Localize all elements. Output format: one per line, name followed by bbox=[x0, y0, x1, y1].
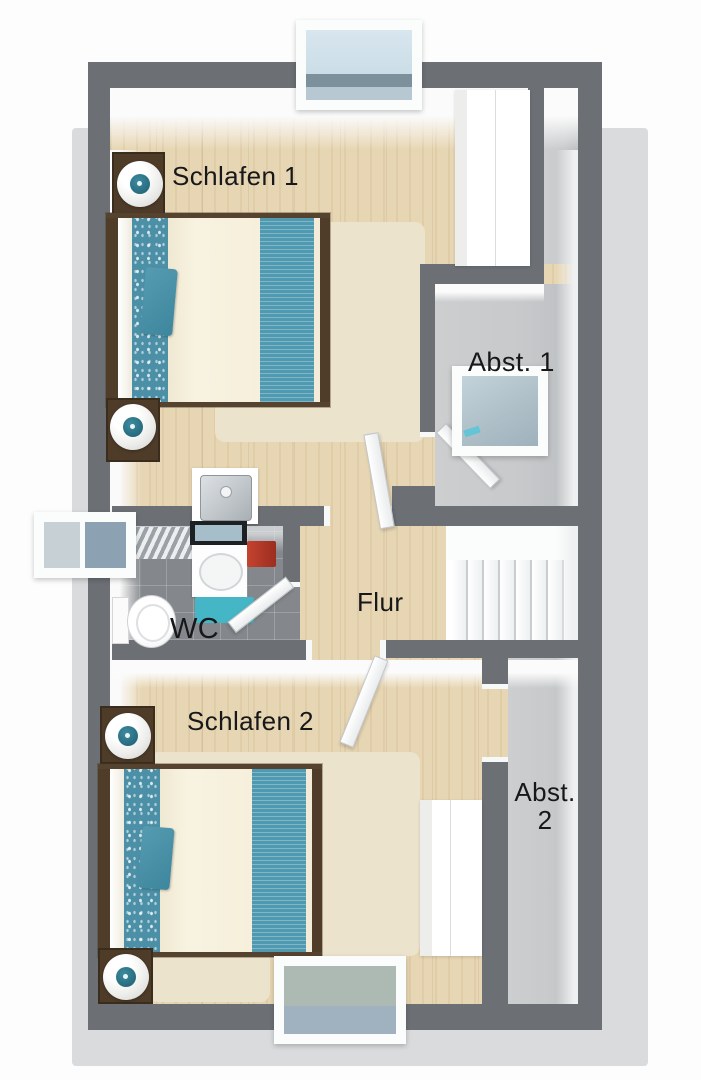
lamp-glint bbox=[123, 974, 128, 979]
stair-tread bbox=[452, 560, 468, 642]
nightstand bbox=[112, 152, 165, 215]
abst2-door-jamb bbox=[482, 684, 508, 689]
stair-tread bbox=[516, 560, 532, 642]
basin bbox=[199, 553, 243, 591]
wardrobe bbox=[420, 800, 482, 956]
top-skylight-window bbox=[296, 20, 422, 110]
wall-abst2-west-lower bbox=[482, 762, 508, 1004]
bed-frame bbox=[106, 213, 330, 407]
skylight-glass bbox=[462, 376, 538, 446]
wall-nook-divider bbox=[528, 88, 544, 264]
stair-edge bbox=[446, 560, 452, 642]
toilet-bowl bbox=[127, 595, 176, 648]
stair-tread bbox=[500, 560, 516, 642]
accent-pillow bbox=[137, 826, 174, 891]
wall-wc-east bbox=[283, 526, 300, 582]
floorplan-canvas: Schlafen 1 Abst. 1 WC Flur Schlafen 2 Ab… bbox=[0, 0, 701, 1080]
mid-wall-face bbox=[112, 660, 578, 688]
double-bed bbox=[106, 213, 330, 407]
wall-abst1-south bbox=[435, 506, 578, 526]
faucet bbox=[220, 486, 232, 498]
stair-tread bbox=[468, 560, 484, 642]
lamp-glint bbox=[137, 181, 142, 186]
skylight-glass-lower bbox=[284, 1006, 396, 1034]
nook-wall-face bbox=[424, 284, 544, 302]
window-pane-right bbox=[85, 522, 126, 568]
wall-nook-bottom bbox=[420, 264, 544, 284]
wardrobe bbox=[455, 90, 530, 266]
double-bed bbox=[98, 764, 322, 957]
skylight-glass-lower bbox=[306, 87, 412, 100]
outer-wall-right bbox=[578, 62, 602, 1030]
room-label-abst2: Abst. 2 bbox=[510, 778, 580, 834]
room-label-abst2-line1: Abst. bbox=[510, 778, 580, 806]
stair-tread bbox=[484, 560, 500, 642]
room-label-abst2-line2: 2 bbox=[510, 806, 580, 834]
wall-stub bbox=[392, 486, 435, 526]
abst1-skylight-window bbox=[452, 366, 548, 456]
window-pane-left bbox=[44, 522, 80, 568]
towel bbox=[247, 541, 276, 567]
wall-flur-south bbox=[386, 640, 578, 658]
skylight-glass-upper bbox=[284, 966, 396, 1006]
nightstand bbox=[100, 706, 155, 764]
wall-abst2-west-upper bbox=[482, 658, 508, 684]
room-label-schlafen1: Schlafen 1 bbox=[172, 162, 299, 190]
bottom-skylight-window bbox=[274, 956, 406, 1044]
abst1-door-jamb bbox=[420, 432, 435, 437]
washbasin-unit bbox=[192, 468, 258, 524]
skylight-glass-upper bbox=[306, 30, 412, 74]
vanity-mirror bbox=[190, 521, 247, 545]
schlafen1-door-jamb bbox=[324, 506, 330, 526]
room-label-abst1: Abst. 1 bbox=[468, 348, 555, 377]
lamp-glint bbox=[130, 424, 135, 429]
wardrobe-seam bbox=[450, 800, 451, 956]
wc-side-window bbox=[34, 512, 136, 578]
skylight-glass-band bbox=[306, 74, 412, 87]
room-label-wc: WC bbox=[170, 614, 219, 645]
accent-pillow bbox=[140, 267, 178, 337]
wardrobe-seam bbox=[495, 90, 496, 266]
nightstand bbox=[106, 398, 160, 462]
room-label-flur: Flur bbox=[357, 588, 403, 616]
room-label-schlafen2: Schlafen 2 bbox=[187, 707, 314, 735]
mirror-glass bbox=[195, 525, 242, 541]
lamp-glint bbox=[125, 733, 130, 738]
steel-sink bbox=[200, 475, 252, 521]
stair-tread bbox=[532, 560, 548, 642]
toilet-seat bbox=[136, 604, 170, 642]
wall-schlafen1-abst1 bbox=[420, 284, 435, 432]
east-wall-face bbox=[556, 150, 578, 1004]
schlafen2-door-jamb bbox=[306, 640, 312, 660]
bed-frame bbox=[98, 764, 322, 957]
vanity-cabinet bbox=[192, 545, 247, 597]
nightstand bbox=[98, 948, 153, 1004]
